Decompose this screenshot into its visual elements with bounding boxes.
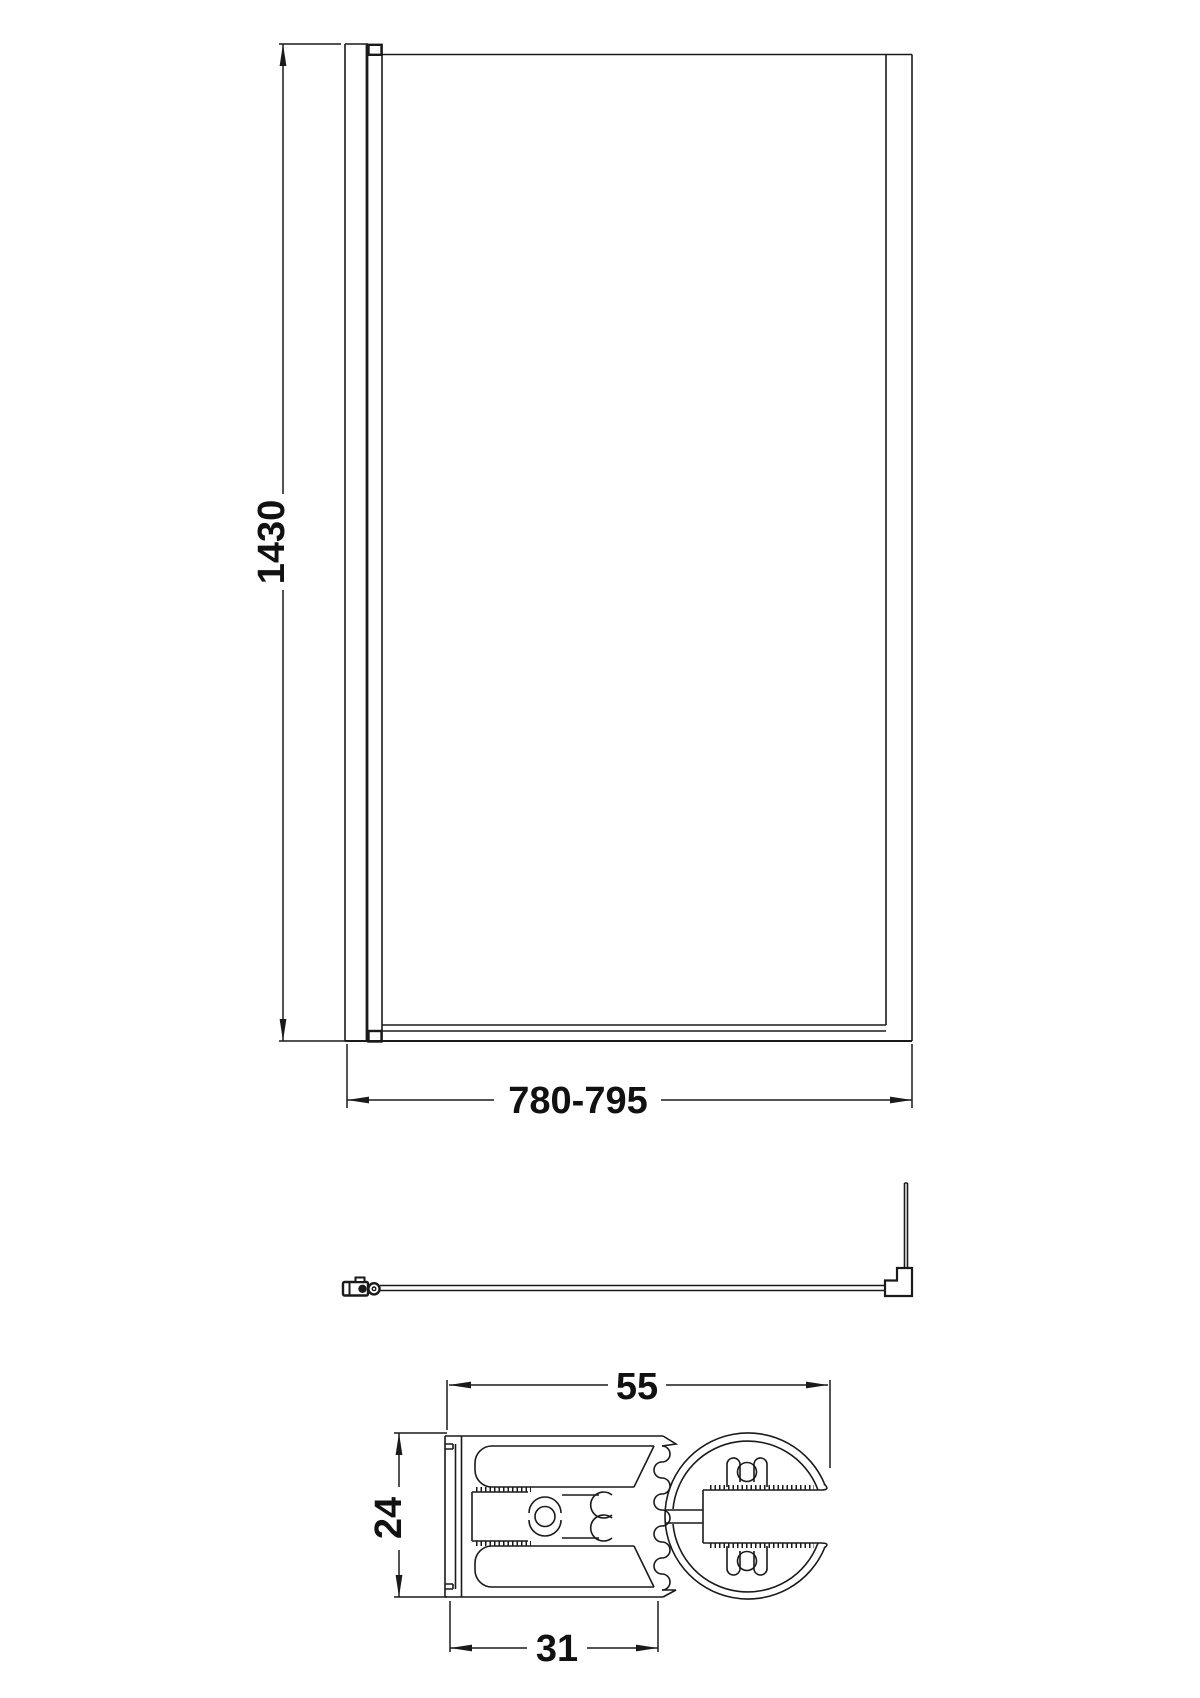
boss-clamp [529, 1497, 561, 1536]
dimension-55: 55 [447, 1366, 830, 1468]
section-width-label: 55 [616, 1366, 658, 1408]
lower-cavity [475, 1546, 654, 1587]
bottom-pivot-cap [369, 1031, 382, 1042]
arrowhead [347, 1097, 369, 1104]
pivot-strip [369, 44, 383, 1042]
dimension-24: 24 [368, 1433, 447, 1597]
width-dimension: 780-795 [347, 1044, 912, 1122]
dimension-31: 31 [450, 1601, 658, 1670]
round-profile-section [665, 1433, 827, 1599]
channel-outer-body [445, 1436, 663, 1597]
glass-panel [345, 55, 912, 1042]
height-dimension: 1430 [251, 44, 345, 1041]
screw-port [535, 1507, 555, 1527]
arrowhead [449, 1382, 471, 1389]
width-dimension-label: 780-795 [508, 1080, 647, 1122]
corner-bracket [885, 1183, 912, 1296]
plan-view [343, 1183, 912, 1296]
tube-bottom-boss [727, 1546, 767, 1575]
tube-outer-wall [665, 1433, 825, 1599]
arrowhead [890, 1097, 912, 1104]
channel-profile-section [445, 1436, 676, 1597]
upper-cavity [475, 1446, 654, 1487]
bath-screen-technical-drawing: 1430 780-795 [0, 0, 1200, 1698]
tube-top-boss [727, 1458, 767, 1487]
top-pivot-cap [369, 45, 382, 55]
arrowhead [450, 1645, 472, 1652]
height-dimension-label: 1430 [251, 500, 293, 585]
arrowhead [396, 1433, 403, 1455]
slot-mouth-caps [821, 1484, 827, 1548]
pivot-ring [368, 1283, 379, 1294]
tube-glass-slot [703, 1490, 821, 1543]
tube-inner-wall [673, 1441, 818, 1592]
wall-fixing-channel [456, 1436, 462, 1597]
arrowhead [806, 1382, 828, 1389]
front-elevation-view [345, 44, 912, 1042]
hinge-pin-dot [358, 1285, 366, 1293]
corner-bracket-body [885, 1268, 912, 1296]
link-channel [665, 1510, 703, 1523]
arrowhead [396, 1575, 403, 1597]
section-base-width-label: 31 [536, 1628, 578, 1670]
section-height-label: 24 [368, 1497, 410, 1539]
hinge-tab [356, 1278, 365, 1283]
screw-boss [529, 1497, 561, 1536]
technical-drawing-sheet: 1430 780-795 [0, 0, 1200, 1698]
seal-strip [905, 1183, 908, 1268]
arrowhead [280, 44, 287, 66]
comb-tabs [662, 1436, 676, 1597]
arrowhead [636, 1645, 658, 1652]
interlock-comb [654, 1446, 670, 1590]
claw-clip [591, 1492, 612, 1541]
arrowhead [280, 1019, 287, 1041]
wall-profile [345, 44, 368, 1041]
pivot-hinge [343, 1278, 380, 1296]
fixing-grooves [445, 1444, 453, 1589]
